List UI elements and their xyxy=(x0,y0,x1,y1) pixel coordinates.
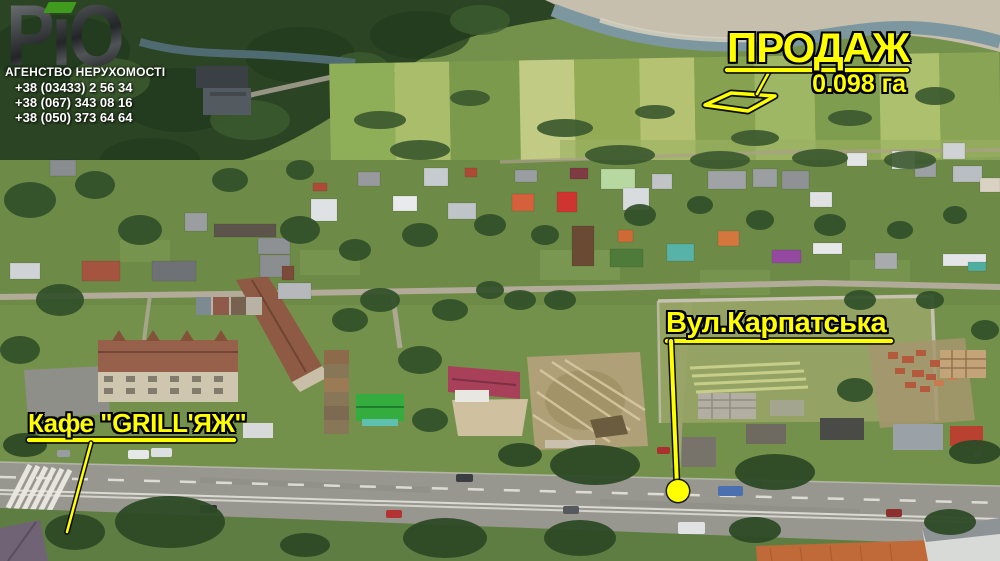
phone-number: +38 (03433) 2 56 34 xyxy=(13,80,132,95)
real-estate-listing-photo: РіО АГЕНСТВО НЕРУХОМОСТІ +38 (03433) 2 5… xyxy=(0,0,1000,561)
sale-label: ПРОДАЖ xyxy=(727,27,909,69)
logo-accent-mark xyxy=(43,2,76,13)
cafe-label: Кафе "GRILL'ЯЖ" xyxy=(28,410,246,436)
agency-name: АГЕНСТВО НЕРУХОМОСТІ xyxy=(5,65,165,79)
cafe-pointer-line xyxy=(67,443,91,532)
agency-phone-list: +38 (03433) 2 56 34 +38 (067) 343 08 16 … xyxy=(13,80,132,125)
street-pointer-line xyxy=(671,341,677,486)
street-location-dot xyxy=(666,479,691,504)
phone-number: +38 (050) 373 64 64 xyxy=(13,110,132,125)
plot-outline-marker xyxy=(705,93,775,111)
phone-number: +38 (067) 343 08 16 xyxy=(13,95,132,110)
street-label: Вул.Карпатська xyxy=(666,309,886,338)
sale-pointer-line xyxy=(757,72,769,94)
sale-area-label: 0.098 га xyxy=(780,72,906,97)
